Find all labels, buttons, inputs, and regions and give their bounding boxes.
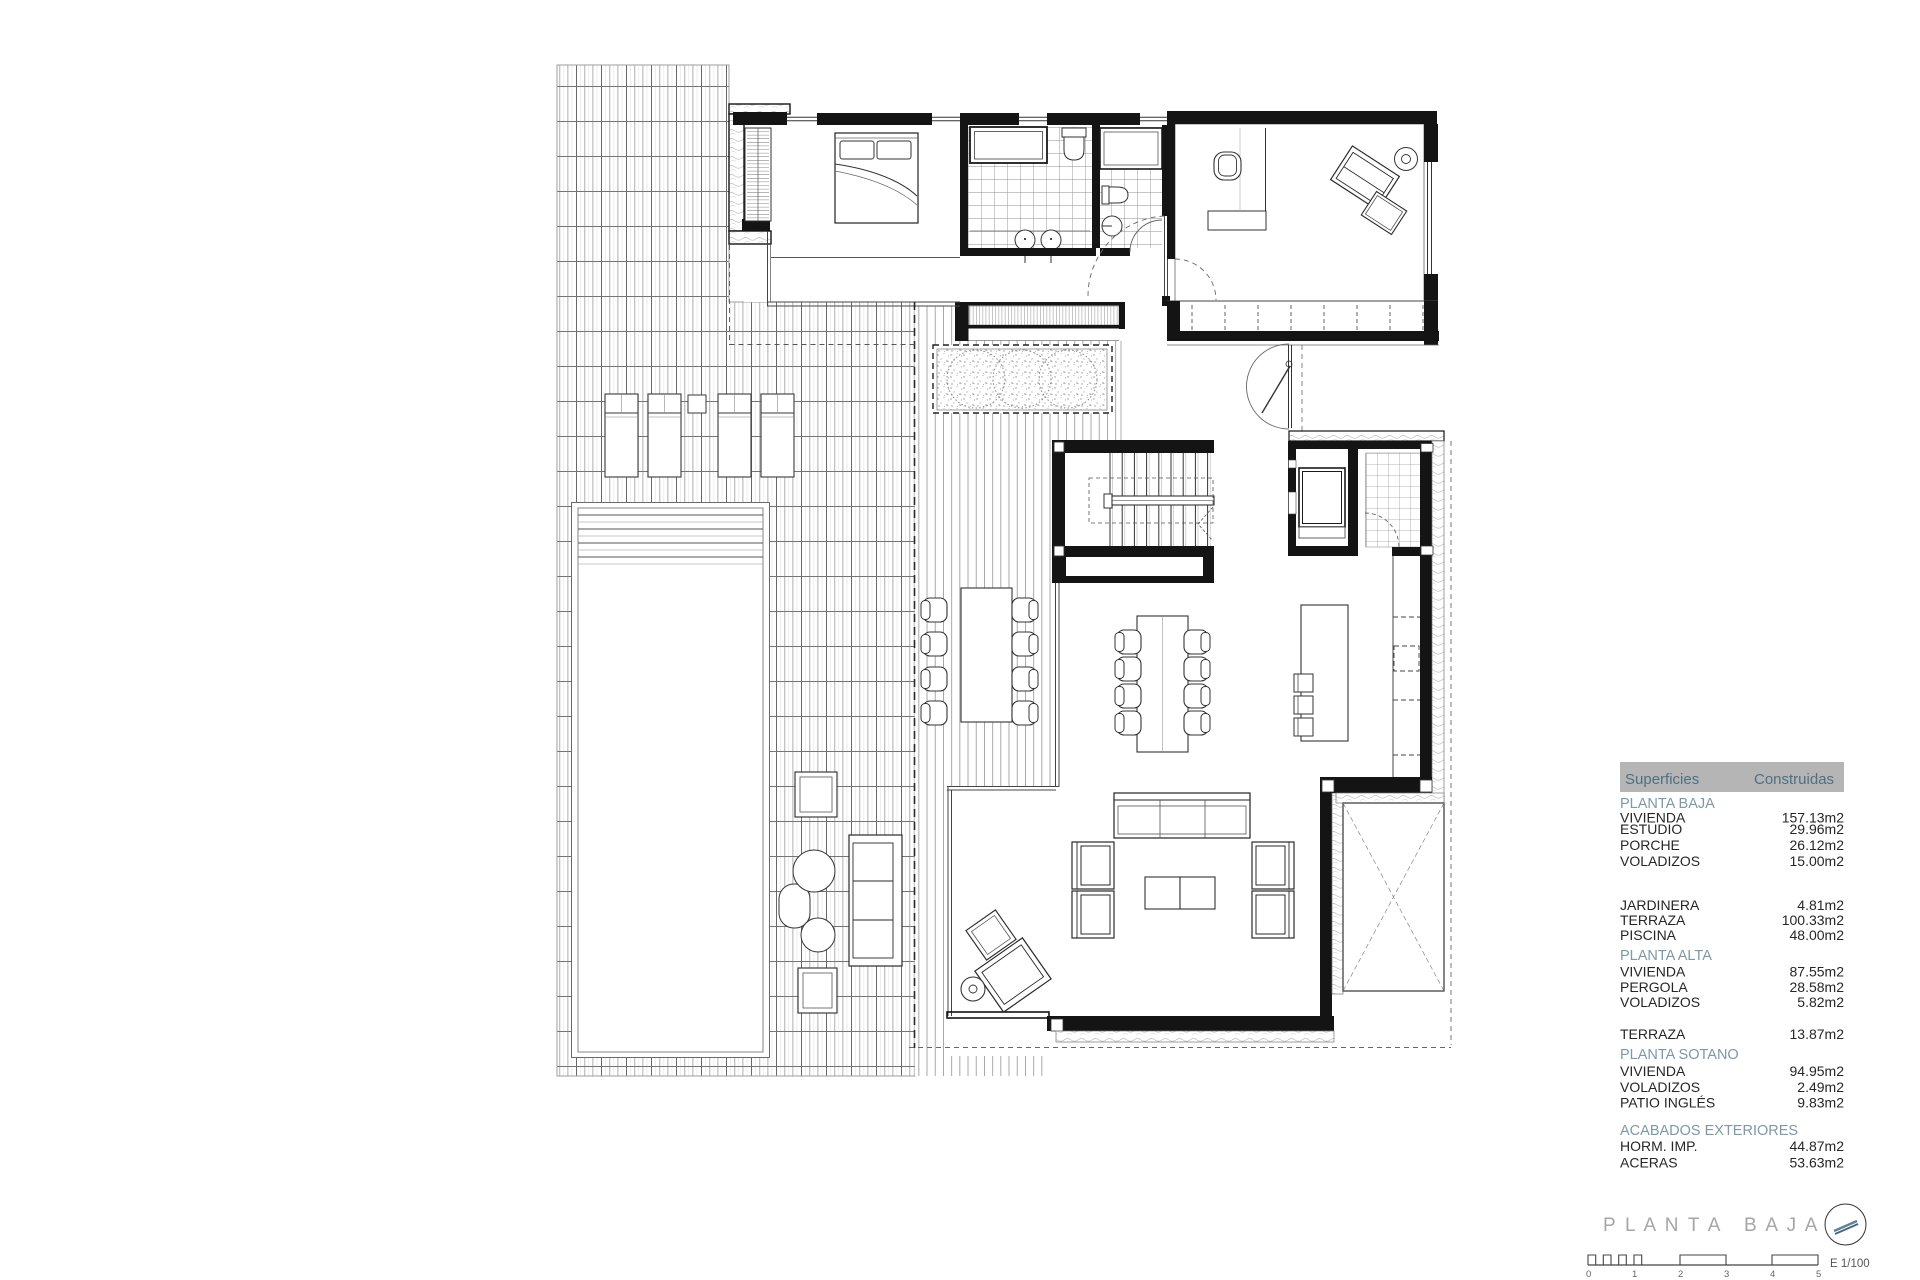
svg-text:2.49m2: 2.49m2: [1797, 1079, 1844, 1095]
svg-text:3: 3: [1724, 1269, 1729, 1280]
svg-text:15.00m2: 15.00m2: [1790, 853, 1845, 869]
svg-text:PISCINA: PISCINA: [1620, 927, 1677, 943]
svg-text:ACABADOS EXTERIORES: ACABADOS EXTERIORES: [1620, 1123, 1798, 1139]
svg-text:VOLADIZOS: VOLADIZOS: [1620, 853, 1700, 869]
svg-text:87.55m2: 87.55m2: [1790, 964, 1845, 980]
svg-text:E 1/100: E 1/100: [1830, 1258, 1870, 1270]
svg-text:JARDINERA: JARDINERA: [1620, 897, 1700, 913]
svg-text:ESTUDIO: ESTUDIO: [1620, 821, 1682, 837]
svg-text:PATIO INGLÉS: PATIO INGLÉS: [1620, 1095, 1715, 1111]
svg-text:29.96m2: 29.96m2: [1790, 821, 1845, 837]
svg-text:Superficies: Superficies: [1625, 771, 1699, 788]
svg-text:VIVIENDA: VIVIENDA: [1620, 964, 1686, 980]
svg-text:94.95m2: 94.95m2: [1790, 1063, 1845, 1079]
svg-text:1: 1: [1632, 1269, 1637, 1280]
svg-text:26.12m2: 26.12m2: [1790, 837, 1845, 853]
svg-text:5: 5: [1816, 1269, 1821, 1280]
svg-text:5.82m2: 5.82m2: [1797, 994, 1844, 1010]
svg-text:ACERAS: ACERAS: [1620, 1155, 1678, 1171]
svg-text:44.87m2: 44.87m2: [1790, 1138, 1845, 1154]
svg-text:4: 4: [1770, 1269, 1775, 1280]
svg-text:VOLADIZOS: VOLADIZOS: [1620, 994, 1700, 1010]
svg-text:HORM. IMP.: HORM. IMP.: [1620, 1138, 1698, 1154]
svg-text:2: 2: [1678, 1269, 1683, 1280]
svg-text:13.87m2: 13.87m2: [1790, 1026, 1845, 1042]
svg-text:28.58m2: 28.58m2: [1790, 979, 1845, 995]
svg-text:0: 0: [1586, 1269, 1591, 1280]
svg-text:PORCHE: PORCHE: [1620, 837, 1680, 853]
svg-text:PERGOLA: PERGOLA: [1620, 979, 1688, 995]
svg-text:VOLADIZOS: VOLADIZOS: [1620, 1079, 1700, 1095]
svg-text:P L A N T A B A J A: P L A N T A B A J A: [1603, 1215, 1820, 1236]
svg-text:53.63m2: 53.63m2: [1790, 1155, 1845, 1171]
svg-text:100.33m2: 100.33m2: [1782, 912, 1844, 928]
svg-text:PLANTA SOTANO: PLANTA SOTANO: [1620, 1047, 1739, 1063]
svg-text:PLANTA ALTA: PLANTA ALTA: [1620, 948, 1712, 964]
svg-text:Construidas: Construidas: [1754, 771, 1834, 788]
svg-text:TERRAZA: TERRAZA: [1620, 912, 1686, 928]
svg-text:TERRAZA: TERRAZA: [1620, 1026, 1686, 1042]
svg-text:VIVIENDA: VIVIENDA: [1620, 1063, 1686, 1079]
svg-text:48.00m2: 48.00m2: [1790, 927, 1845, 943]
svg-text:4.81m2: 4.81m2: [1797, 897, 1844, 913]
svg-text:9.83m2: 9.83m2: [1797, 1095, 1844, 1111]
